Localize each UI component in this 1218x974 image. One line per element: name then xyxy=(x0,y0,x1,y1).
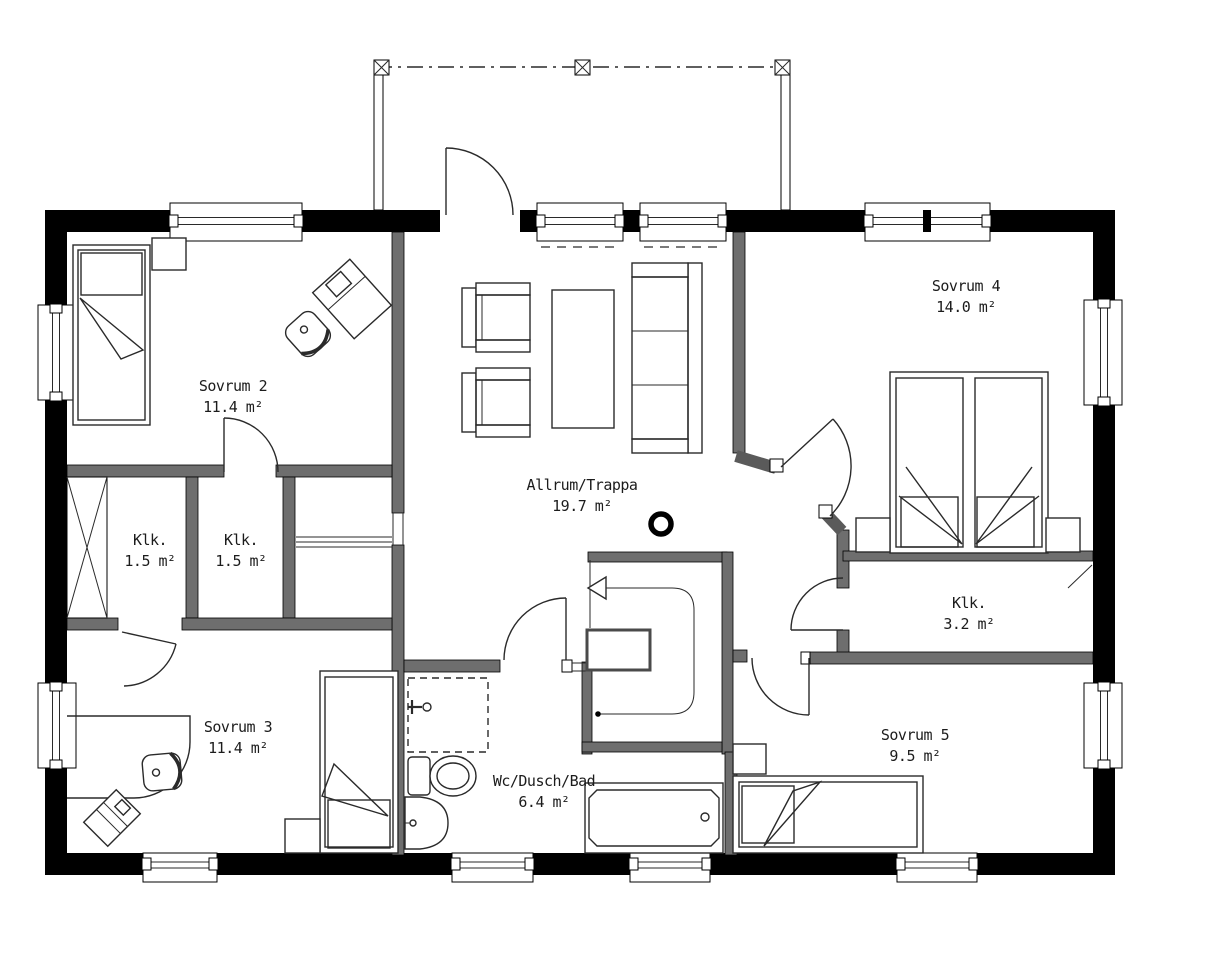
label-sovrum5-area: 9.5 m² xyxy=(889,747,940,765)
klk-corner-mark xyxy=(1068,565,1092,588)
window-sovrum5-bottom xyxy=(896,853,978,882)
shower-area xyxy=(408,678,488,752)
floor-plan-drawing: Sovrum 2 11.4 m² Sovrum 4 14.0 m² Klk. 1… xyxy=(0,0,1218,974)
door-sovrum2 xyxy=(224,418,278,472)
stair-landing xyxy=(587,630,650,670)
window-sovrum5-right xyxy=(1084,682,1122,769)
nightstand-sovrum4-left xyxy=(856,518,890,552)
label-allrum-name: Allrum/Trappa xyxy=(527,476,638,494)
window-sovrum2-left xyxy=(38,304,76,401)
chair-sovrum2 xyxy=(282,308,334,360)
nightstand-sovrum4-right xyxy=(1046,518,1080,552)
sofa xyxy=(632,263,702,453)
entry-door xyxy=(446,148,513,215)
label-klk-a-name: Klk. xyxy=(133,531,167,549)
window-bath-bottom xyxy=(629,853,711,882)
door-klk-right xyxy=(791,578,843,630)
window-wc-bottom xyxy=(451,853,534,882)
label-sovrum5-name: Sovrum 5 xyxy=(881,726,949,744)
shaft-cross xyxy=(67,477,107,618)
porch-wall-left xyxy=(374,62,383,210)
flue-circle xyxy=(651,514,671,534)
label-klk-b-name: Klk. xyxy=(224,531,258,549)
armchair-1 xyxy=(462,283,530,352)
door-sovrum4 xyxy=(781,419,851,516)
porch xyxy=(374,60,790,210)
window-allrum-left xyxy=(536,203,624,247)
label-sovrum4-name: Sovrum 4 xyxy=(932,277,1001,295)
nightstand-sovrum5 xyxy=(733,744,766,774)
label-klk-c-name: Klk. xyxy=(952,594,986,612)
bed-sovrum5 xyxy=(733,776,923,853)
window-sovrum2-top xyxy=(169,203,303,241)
nightstand-sovrum3 xyxy=(285,819,320,853)
threshold-lines-nook xyxy=(296,537,392,547)
window-allrum-right xyxy=(639,203,727,247)
passage-threshold-hall xyxy=(393,513,403,545)
window-sovrum3-bottom xyxy=(142,853,218,882)
staircase xyxy=(587,560,694,717)
coffee-table xyxy=(552,290,614,428)
door-bathroom xyxy=(504,598,566,660)
bed-sovrum2 xyxy=(73,245,150,425)
washbasin xyxy=(405,797,448,849)
label-sovrum4-area: 14.0 m² xyxy=(936,298,996,316)
double-bed-sovrum4 xyxy=(890,372,1048,553)
label-klk-c-area: 3.2 m² xyxy=(943,615,994,633)
window-sovrum3-left xyxy=(38,682,76,769)
label-wc-name: Wc/Dusch/Bad xyxy=(493,772,595,790)
label-allrum-area: 19.7 m² xyxy=(552,497,612,515)
label-wc-area: 6.4 m² xyxy=(518,793,569,811)
window-sovrum4-right xyxy=(1084,299,1122,406)
window-sovrum4-top xyxy=(864,203,991,241)
door-sovrum5 xyxy=(752,658,809,715)
label-klk-a-area: 1.5 m² xyxy=(124,552,175,570)
label-sovrum3-area: 11.4 m² xyxy=(208,739,268,757)
bed-sovrum3 xyxy=(320,671,398,853)
porch-post-right xyxy=(775,60,790,75)
door-sovrum3 xyxy=(122,632,176,686)
label-klk-b-area: 1.5 m² xyxy=(215,552,266,570)
side-table-sovrum2 xyxy=(152,238,186,270)
porch-post-middle xyxy=(575,60,590,75)
armchair-2 xyxy=(462,368,530,437)
label-sovrum3-name: Sovrum 3 xyxy=(204,718,272,736)
bathtub xyxy=(585,783,723,853)
porch-wall-right xyxy=(781,62,790,210)
toilet xyxy=(408,756,476,796)
porch-post-left xyxy=(374,60,389,75)
label-sovrum2-name: Sovrum 2 xyxy=(199,377,267,395)
chair-sovrum3 xyxy=(142,752,183,791)
label-sovrum2-area: 11.4 m² xyxy=(203,398,263,416)
floor-plan-canvas: Sovrum 2 11.4 m² Sovrum 4 14.0 m² Klk. 1… xyxy=(0,0,1218,974)
